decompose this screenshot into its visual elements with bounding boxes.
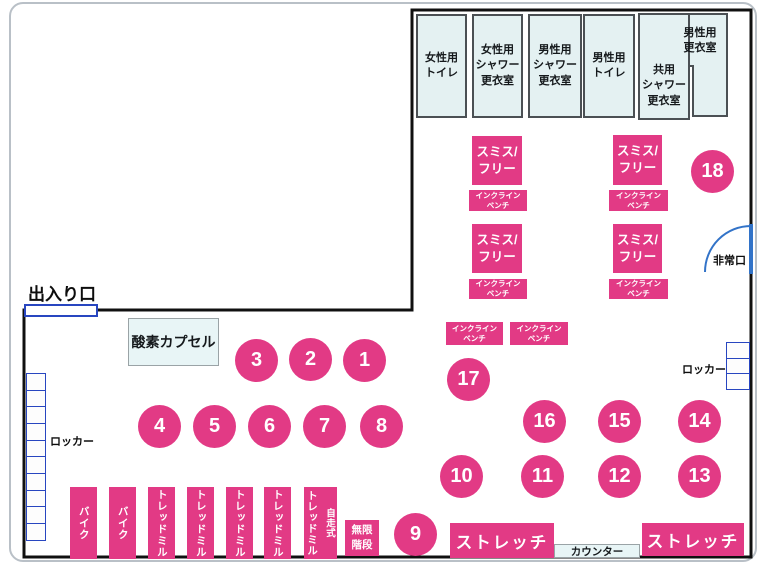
- entrance-door: [24, 304, 98, 317]
- counter-box: カウンター: [554, 544, 640, 558]
- room-womens-toilet: 女性用 トイレ: [416, 14, 467, 118]
- room-womens-shower-changing: 女性用 シャワー 更衣室: [472, 14, 523, 118]
- room-mens-shower-changing: 男性用 シャワー 更衣室: [528, 14, 582, 118]
- locker-cell: [26, 390, 46, 408]
- station-circle-5: 5: [193, 405, 236, 448]
- treadmill-2: トレッドミル: [187, 487, 214, 559]
- station-circle-15: 15: [598, 400, 641, 443]
- station-circle-3: 3: [235, 339, 278, 382]
- incline-bench-1: インクライン ベンチ: [469, 190, 527, 211]
- self-propelled-treadmill: トレッドミル 自走式: [304, 487, 337, 559]
- incline-bench-2: インクライン ベンチ: [609, 190, 668, 211]
- incline-bench-4: インクライン ベンチ: [609, 279, 668, 299]
- locker-cell: [26, 473, 46, 491]
- station-circle-7: 7: [303, 405, 346, 448]
- emergency-exit-label: 非常口: [712, 252, 747, 268]
- locker-cell: [726, 342, 750, 359]
- locker-column-right: [726, 342, 750, 390]
- oxygen-capsule-box: 酸素カプセル: [128, 318, 219, 366]
- locker-cell: [726, 358, 750, 375]
- incline-bench-6: インクライン ベンチ: [510, 322, 568, 345]
- station-circle-17: 17: [447, 358, 490, 401]
- station-circle-11: 11: [521, 455, 564, 498]
- locker-cell: [26, 506, 46, 524]
- station-circle-10: 10: [440, 455, 483, 498]
- bike-machine-2: バイク: [109, 487, 136, 559]
- locker-label-left: ロッカー: [50, 433, 94, 449]
- station-circle-12: 12: [598, 455, 641, 498]
- station-circle-14: 14: [678, 400, 721, 443]
- station-circle-8: 8: [360, 405, 403, 448]
- station-circle-9: 9: [394, 513, 437, 556]
- locker-label-right: ロッカー: [682, 361, 726, 377]
- treadmill-text: トレッドミル: [305, 490, 320, 556]
- smith-free-rack-4: スミス/ フリー: [613, 224, 662, 273]
- locker-cell: [726, 373, 750, 390]
- locker-cell: [26, 423, 46, 441]
- station-circle-2: 2: [289, 338, 332, 381]
- room-mens-toilet: 男性用 トイレ: [583, 14, 635, 118]
- smith-free-rack-1: スミス/ フリー: [472, 136, 522, 185]
- stretch-area-2: ストレッチ: [642, 523, 744, 556]
- self-propelled-text: 自走式: [322, 508, 336, 538]
- station-circle-13: 13: [678, 455, 721, 498]
- locker-cell: [26, 456, 46, 474]
- treadmill-1: トレッドミル: [148, 487, 175, 559]
- incline-bench-3: インクライン ベンチ: [469, 279, 527, 299]
- treadmill-4: トレッドミル: [264, 487, 291, 559]
- station-circle-16: 16: [523, 400, 566, 443]
- infinite-stairs-box: 無限 階段: [345, 520, 379, 556]
- station-circle-4: 4: [138, 405, 181, 448]
- treadmill-3: トレッドミル: [226, 487, 253, 559]
- locker-cell: [26, 523, 46, 541]
- locker-cell: [26, 490, 46, 508]
- smith-free-rack-2: スミス/ フリー: [613, 135, 662, 185]
- station-circle-6: 6: [248, 405, 291, 448]
- smith-free-rack-3: スミス/ フリー: [472, 224, 522, 273]
- stretch-area-1: ストレッチ: [450, 523, 554, 558]
- station-circle-1: 1: [343, 339, 386, 382]
- gym-floor-plan: 女性用 トイレ 女性用 シャワー 更衣室 男性用 シャワー 更衣室 男性用 トイ…: [0, 0, 768, 570]
- bike-machine-1: バイク: [70, 487, 97, 559]
- room-mens-changing-label: 男性用 更衣室: [673, 20, 727, 62]
- incline-bench-5: インクライン ベンチ: [446, 322, 503, 345]
- locker-cell: [26, 373, 46, 391]
- station-circle-18: 18: [691, 150, 734, 193]
- entrance-label: 出入り口: [28, 280, 96, 305]
- locker-cell: [26, 406, 46, 424]
- locker-cell: [26, 440, 46, 458]
- locker-column-left: [26, 373, 46, 541]
